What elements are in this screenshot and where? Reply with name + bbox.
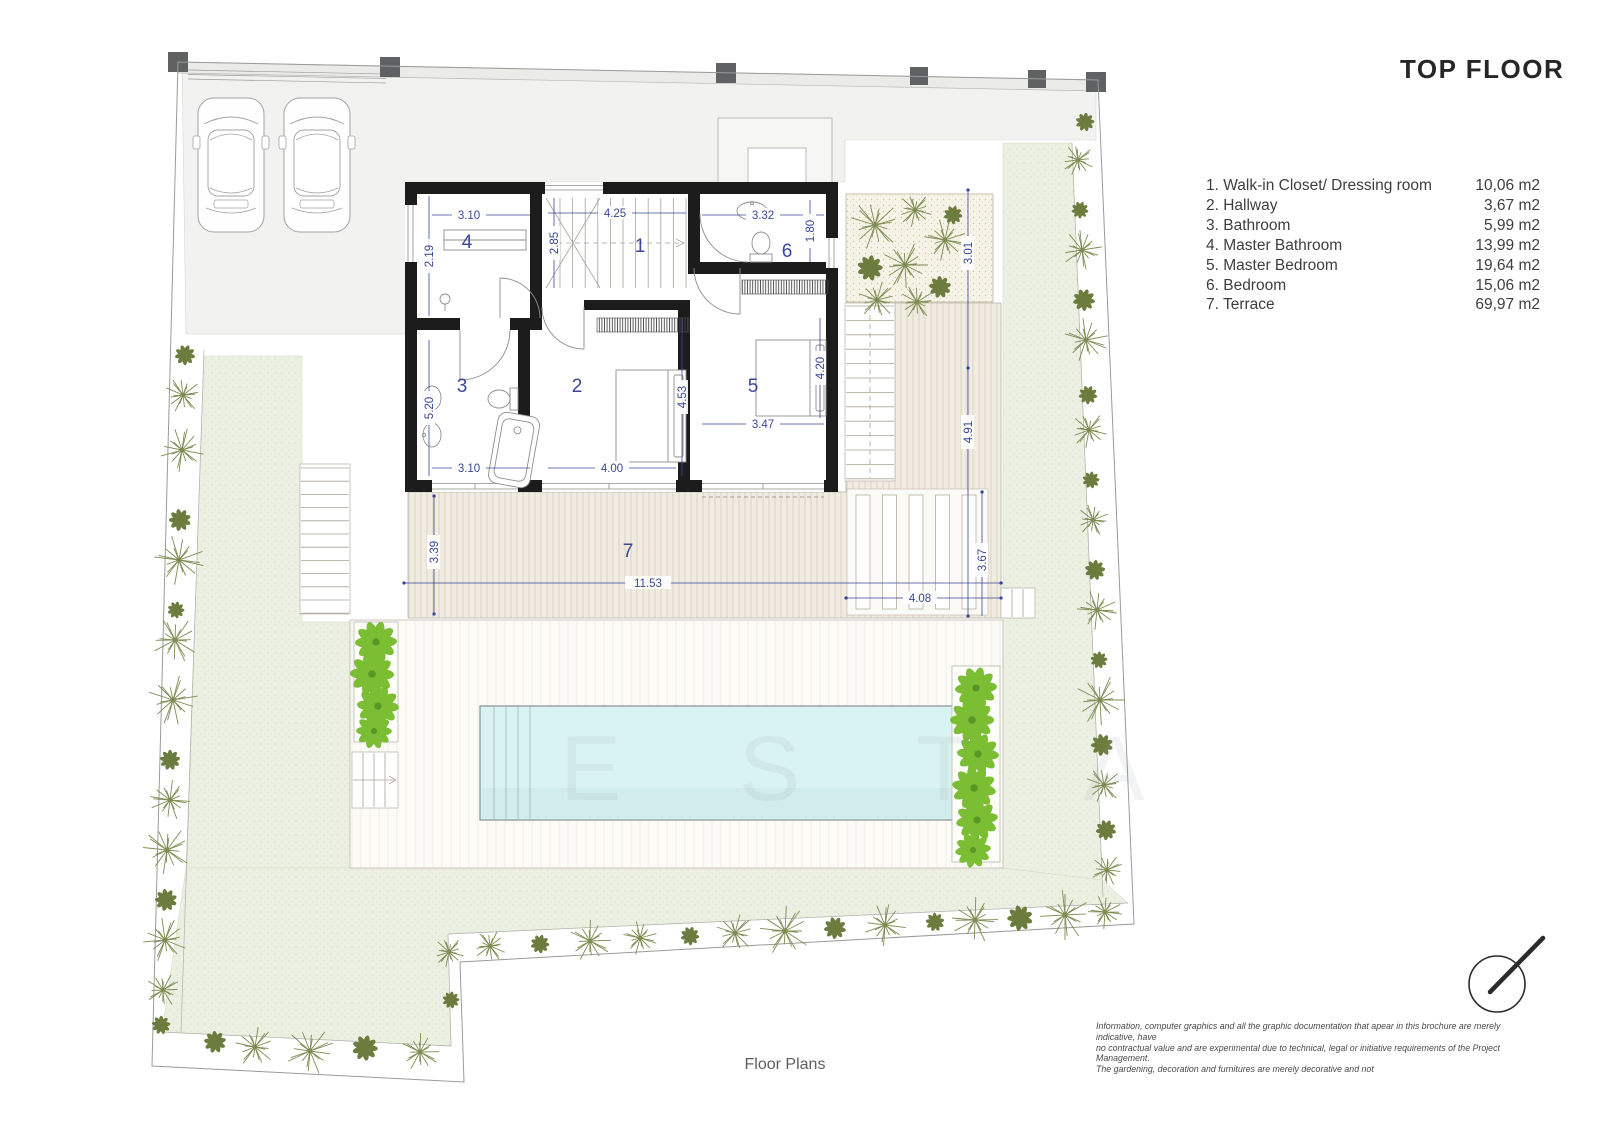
svg-text:3.01: 3.01	[963, 242, 975, 264]
dimension-label: 4.20	[813, 351, 827, 385]
disclaimer-line: The gardening, decoration and furnitures…	[1096, 1064, 1524, 1075]
room-number-label: 6	[782, 241, 793, 262]
skylight	[718, 118, 832, 184]
svg-text:4.91: 4.91	[963, 421, 975, 443]
plant-icon	[160, 370, 208, 419]
legend-item-area: 69,97 m2	[1475, 295, 1540, 315]
page-title: TOP FLOOR	[1400, 54, 1550, 85]
legend-item: 6. Bedroom15,06 m2	[1206, 276, 1540, 296]
legend-item-area: 19,64 m2	[1475, 256, 1540, 276]
plant-icon	[147, 777, 193, 821]
dimension-label: 3.67	[975, 543, 989, 577]
legend-item-area: 15,06 m2	[1475, 276, 1540, 296]
disclaimer-line: Information, computer graphics and all t…	[1096, 1021, 1524, 1043]
svg-text:4.00: 4.00	[601, 463, 623, 475]
plant-icon	[166, 506, 195, 535]
dimension-label: 4.91	[961, 415, 975, 449]
dimension-label: 3.01	[961, 236, 975, 270]
svg-text:3.39: 3.39	[429, 541, 441, 563]
legend-item: 4. Master Bathroom13,99 m2	[1206, 236, 1540, 256]
legend-item-label: 7. Terrace	[1206, 295, 1475, 315]
svg-text:3.10: 3.10	[458, 210, 480, 222]
svg-text:3.10: 3.10	[458, 463, 480, 475]
svg-text:4.53: 4.53	[677, 386, 689, 408]
dimension-label: 3.32	[746, 208, 780, 222]
dimension-label: 4.53	[675, 380, 689, 414]
room-number-label: 2	[572, 376, 583, 397]
legend-item-area: 10,06 m2	[1475, 176, 1540, 196]
plant-icon	[820, 913, 850, 942]
dimension-label: 3.10	[452, 208, 486, 222]
plant-icon	[171, 341, 199, 369]
legend-item: 7. Terrace69,97 m2	[1206, 295, 1540, 315]
legend-item-label: 3. Bathroom	[1206, 216, 1484, 236]
legend-item: 3. Bathroom5,99 m2	[1206, 216, 1540, 236]
svg-text:3.67: 3.67	[977, 549, 989, 571]
svg-text:4.25: 4.25	[604, 208, 626, 220]
floor-plan-page: E S T A	[0, 0, 1600, 1131]
dimension-label: 2.19	[422, 239, 436, 273]
dimension-label: 5.20	[422, 391, 436, 425]
legend-item-area: 3,67 m2	[1484, 196, 1540, 216]
legend-item-label: 2. Hallway	[1206, 196, 1484, 216]
watermark: E S T A	[560, 718, 1191, 820]
room-number-label: 1	[635, 236, 646, 257]
floor-plan-canvas: E S T A	[0, 0, 1600, 1131]
room-number-label: 4	[462, 232, 473, 253]
dimension-label: 2.85	[547, 226, 561, 260]
dimension-label: 3.47	[746, 417, 780, 431]
svg-text:1.80: 1.80	[805, 220, 817, 242]
plant-icon	[153, 887, 179, 912]
svg-text:3.32: 3.32	[752, 210, 774, 222]
dimension-label: 4.25	[598, 206, 632, 220]
plant-icon	[925, 912, 945, 932]
legend-item-area: 5,99 m2	[1484, 216, 1540, 236]
dimension-label: 4.00	[595, 461, 629, 475]
dimension-label: 3.39	[427, 535, 441, 569]
svg-text:2.19: 2.19	[424, 245, 436, 267]
plant-icon	[164, 598, 188, 622]
north-arrow-icon	[1469, 938, 1543, 1012]
dimension-label: 4.08	[903, 591, 937, 605]
legend-item-label: 6. Bedroom	[1206, 276, 1475, 296]
plant-icon	[526, 930, 553, 957]
plant-icon	[680, 925, 701, 946]
room-number-label: 5	[748, 376, 759, 397]
legend-item: 2. Hallway3,67 m2	[1206, 196, 1540, 216]
room-number-label: 7	[623, 541, 634, 562]
svg-text:4.08: 4.08	[909, 593, 931, 605]
page-caption: Floor Plans	[690, 1056, 880, 1074]
svg-text:4.20: 4.20	[815, 357, 827, 379]
legend-item-label: 4. Master Bathroom	[1206, 236, 1475, 256]
legend-item: 5. Master Bedroom19,64 m2	[1206, 256, 1540, 276]
svg-text:5.20: 5.20	[424, 397, 436, 419]
room-number-label: 3	[457, 376, 468, 397]
legend-item-label: 5. Master Bedroom	[1206, 256, 1475, 276]
legend-item-area: 13,99 m2	[1475, 236, 1540, 256]
dimension-label: 11.53	[625, 576, 671, 590]
disclaimer-line: no contractual value and are experimenta…	[1096, 1043, 1524, 1065]
dimension-label: 1.80	[803, 214, 817, 248]
legend-item: 1. Walk-in Closet/ Dressing room10,06 m2	[1206, 176, 1540, 196]
disclaimer: Information, computer graphics and all t…	[1096, 1021, 1524, 1075]
legend-item-label: 1. Walk-in Closet/ Dressing room	[1206, 176, 1475, 196]
svg-text:11.53: 11.53	[634, 578, 662, 590]
dimension-label: 3.10	[452, 461, 486, 475]
svg-text:3.47: 3.47	[752, 419, 774, 431]
svg-text:2.85: 2.85	[549, 232, 561, 254]
legend: 1. Walk-in Closet/ Dressing room10,06 m2…	[1206, 176, 1540, 315]
